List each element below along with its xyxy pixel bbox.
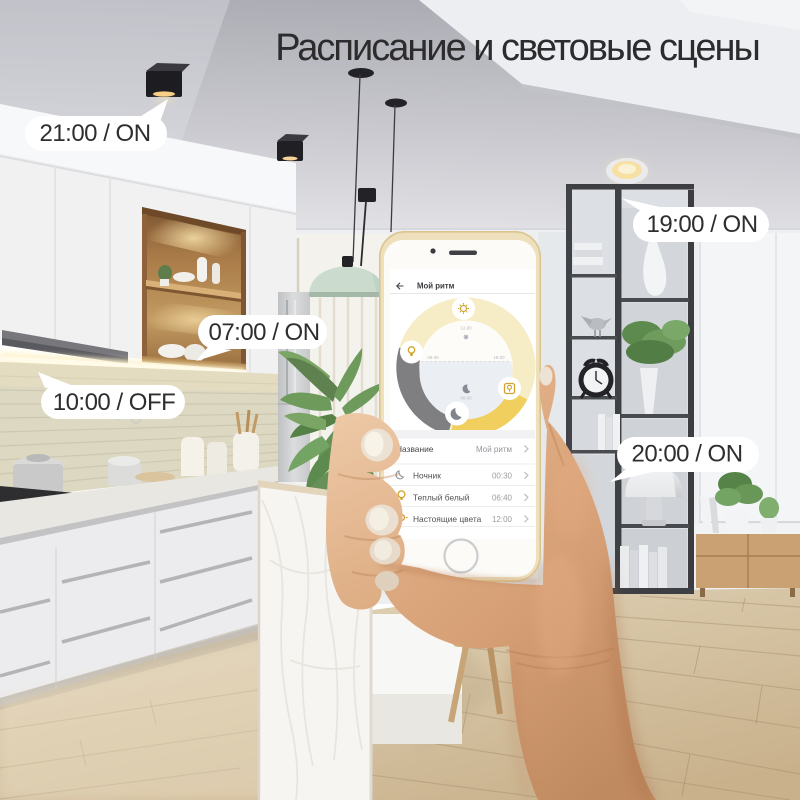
svg-text:20:00 / ON: 20:00 / ON [631,441,742,468]
svg-text:18-00: 18-00 [493,355,505,360]
svg-text:Название: Название [396,444,434,454]
svg-text:Расписание и световые сцены: Расписание и световые сцены [275,27,759,69]
svg-text:07:00 / ON: 07:00 / ON [208,319,319,346]
svg-text:Ночник: Ночник [413,471,441,481]
svg-text:Мой ритм: Мой ритм [417,282,455,291]
svg-text:10:00 / OFF: 10:00 / OFF [53,389,176,416]
svg-text:Теплый белый: Теплый белый [413,493,470,503]
svg-text:00-00: 00-00 [460,396,472,401]
svg-text:Настоящие цвета: Настоящие цвета [413,514,482,524]
svg-text:19:00 / ON: 19:00 / ON [646,211,757,238]
svg-text:Мой ритм: Мой ритм [476,445,512,454]
svg-text:06:40: 06:40 [492,494,513,503]
svg-text:12:00: 12:00 [492,515,513,524]
svg-text:12-00: 12-00 [460,326,472,331]
svg-text:00:30: 00:30 [492,472,513,481]
svg-text:06-00: 06-00 [427,355,439,360]
svg-text:21:00 / ON: 21:00 / ON [39,120,150,147]
